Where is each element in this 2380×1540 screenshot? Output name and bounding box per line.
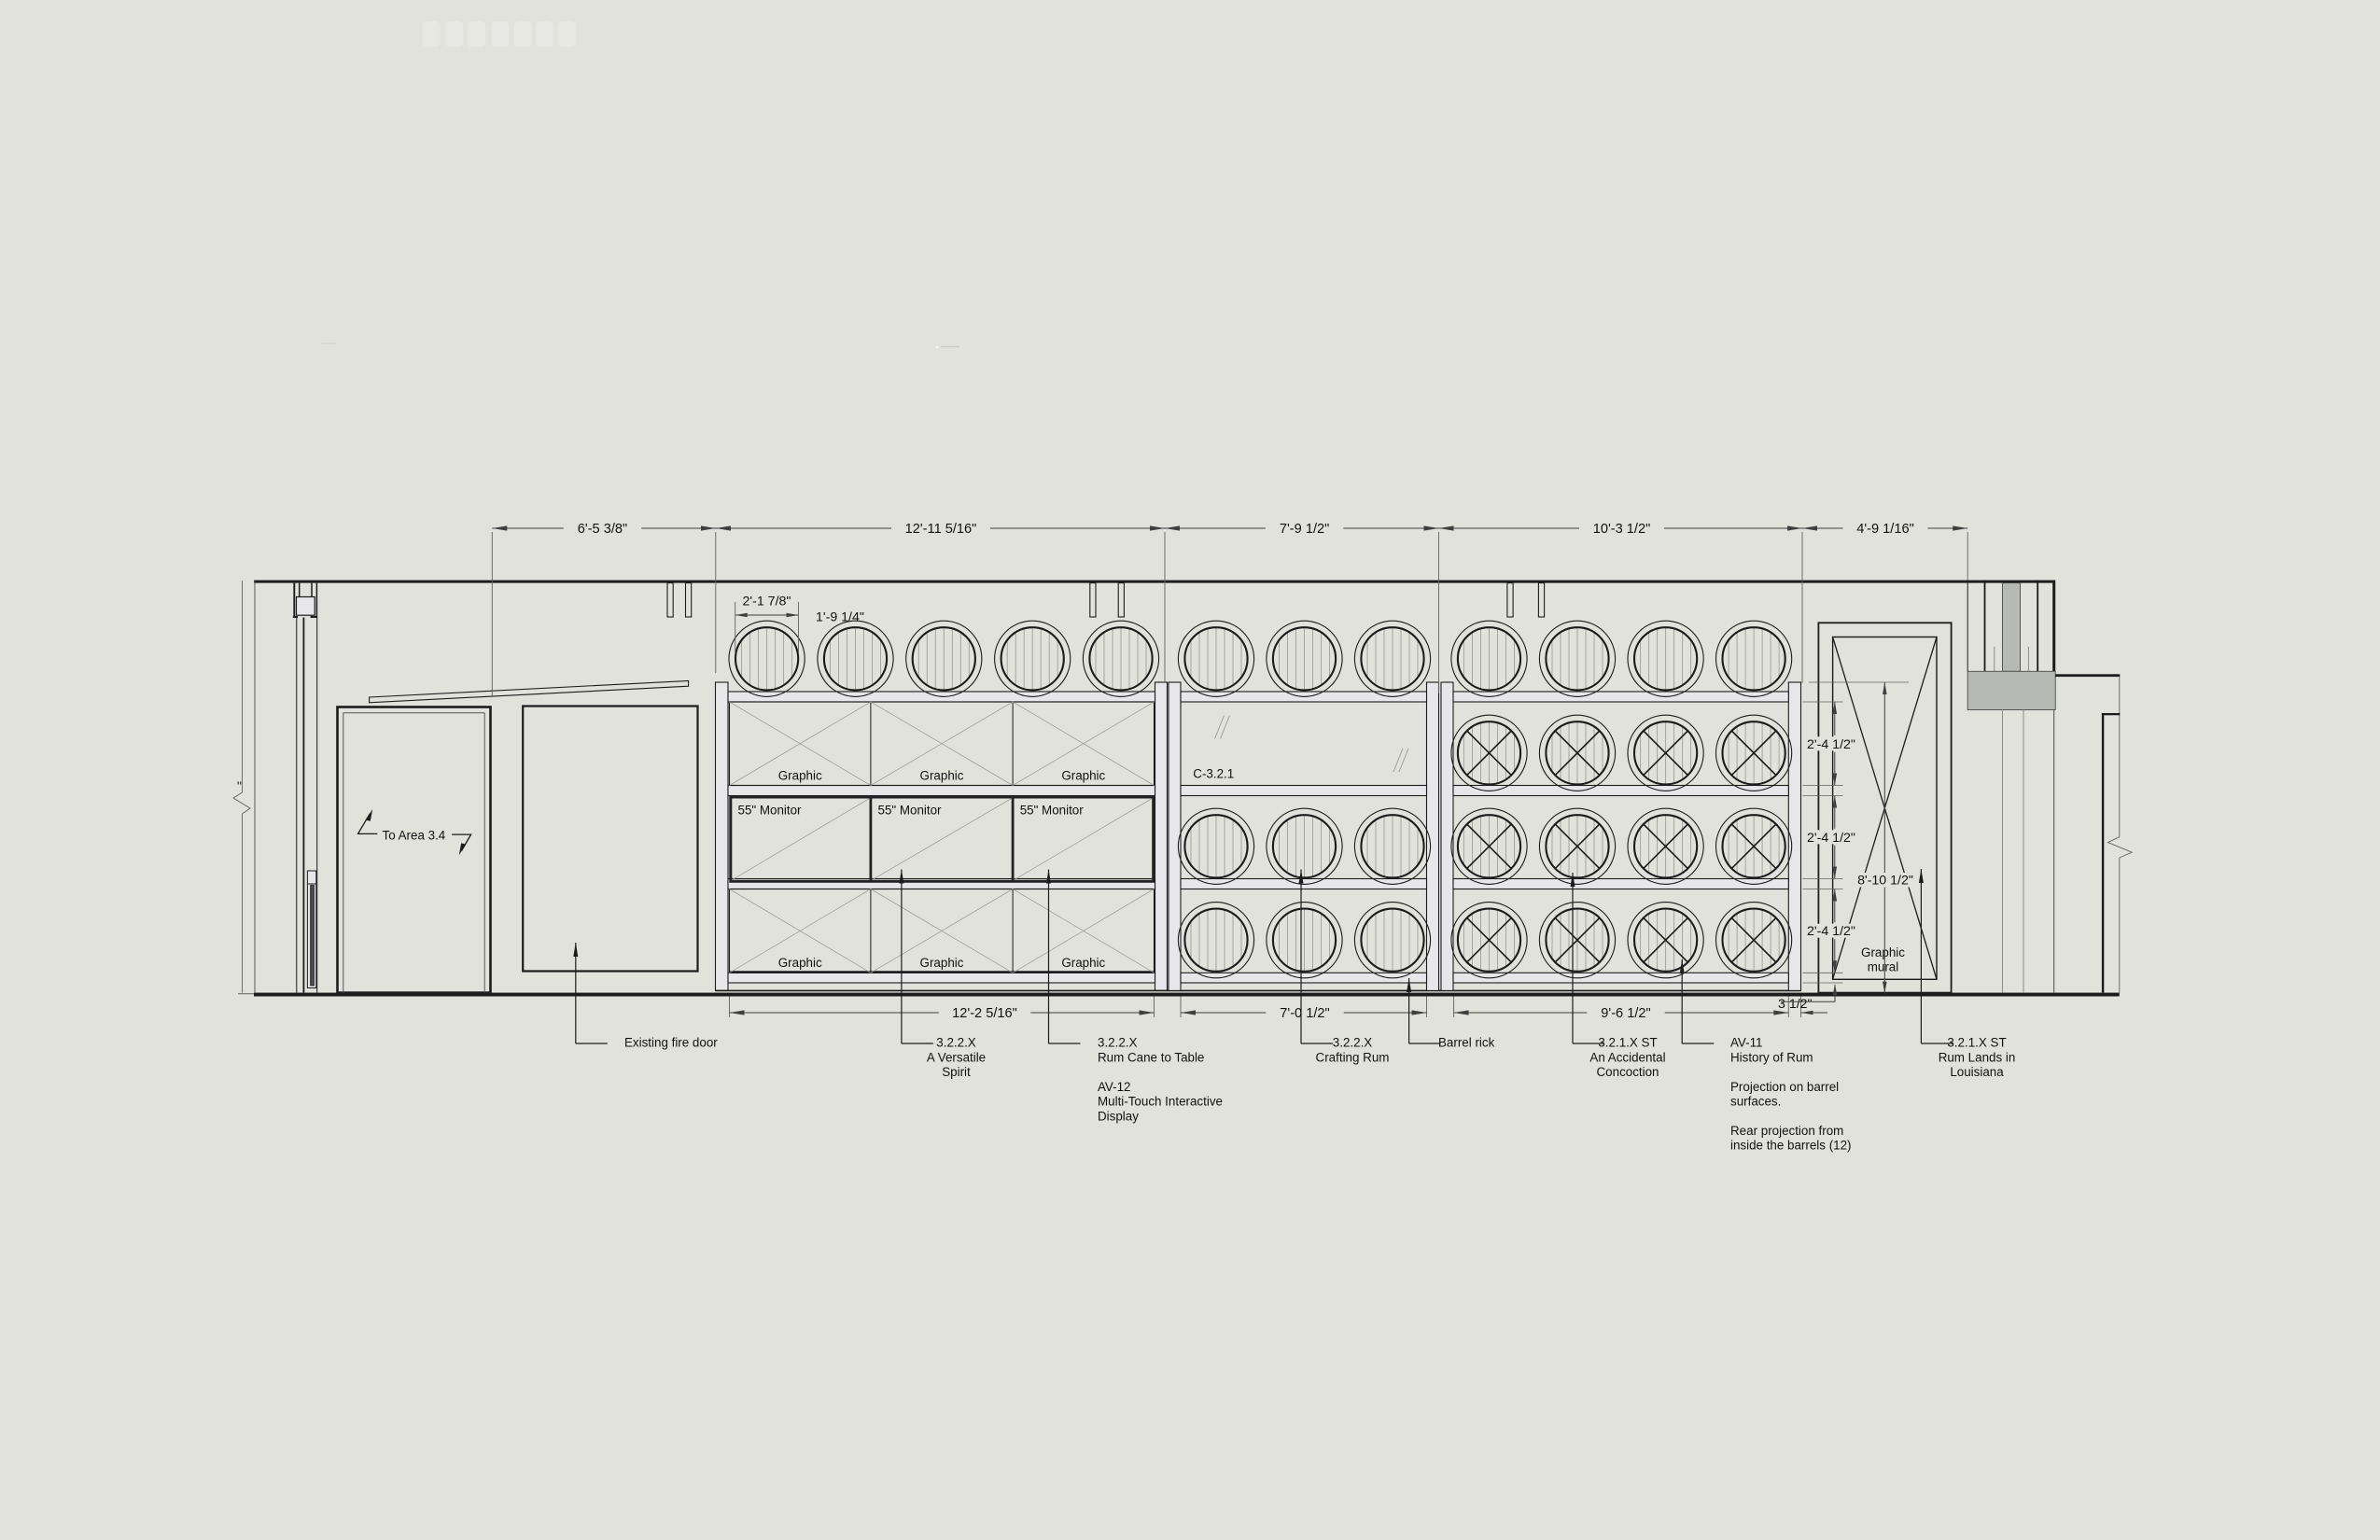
svg-text:Barrel rick: Barrel rick [1438,1036,1495,1050]
svg-text:3.2.2.X: 3.2.2.X [1333,1036,1373,1050]
svg-text:Graphic: Graphic [920,956,964,970]
svg-text:To Area 3.4: To Area 3.4 [383,829,446,843]
svg-text:inside the barrels (12): inside the barrels (12) [1730,1139,1852,1153]
svg-text:10'-3 1/2": 10'-3 1/2" [1593,522,1651,537]
svg-text:3.2.2.X: 3.2.2.X [1098,1036,1138,1050]
svg-text:4'-9 1/16": 4'-9 1/16" [1856,522,1914,537]
svg-text:12'-11 5/16": 12'-11 5/16" [905,522,977,537]
svg-text:3 1/2": 3 1/2" [1778,997,1813,1012]
svg-text:2'-4 1/2": 2'-4 1/2" [1807,831,1855,846]
svg-text:3.2.2.X: 3.2.2.X [936,1036,976,1050]
svg-text:Spirit: Spirit [942,1065,971,1079]
svg-text:Rear projection from: Rear projection from [1730,1124,1843,1138]
svg-text:AV-12: AV-12 [1098,1080,1130,1094]
svg-text:History of Rum: History of Rum [1730,1050,1813,1064]
svg-text:55" Monitor: 55" Monitor [878,804,943,818]
svg-text:C-3.2.1: C-3.2.1 [1193,767,1234,781]
svg-text:Multi-Touch Interactive: Multi-Touch Interactive [1098,1095,1223,1109]
svg-text:Graphic: Graphic [920,769,964,783]
svg-text:2'-4 1/2": 2'-4 1/2" [1807,924,1855,939]
svg-text:2'-1 7/8": 2'-1 7/8" [743,595,791,609]
svg-text:3.2.1.X ST: 3.2.1.X ST [1947,1036,2006,1050]
svg-text:7'-0 1/2": 7'-0 1/2" [1280,1006,1329,1021]
svg-text:9'-6 1/2": 9'-6 1/2" [1601,1006,1650,1021]
svg-text:surfaces.: surfaces. [1730,1095,1781,1109]
svg-text:A Versatile: A Versatile [927,1050,986,1064]
svg-text:AV-11: AV-11 [1730,1036,1763,1050]
svg-text:55" Monitor: 55" Monitor [738,804,803,818]
svg-text:1'-9 1/4": 1'-9 1/4" [816,610,864,625]
svg-text:12'-2 5/16": 12'-2 5/16" [952,1006,1017,1021]
svg-text:Louisiana: Louisiana [1950,1065,2004,1079]
svg-text:An Accidental: An Accidental [1589,1050,1665,1064]
svg-text:8'-10 1/2": 8'-10 1/2" [1857,874,1913,889]
svg-text:2'-4 1/2": 2'-4 1/2" [1807,737,1855,752]
svg-text:Rum Lands in: Rum Lands in [1939,1050,2016,1064]
svg-text:Graphic: Graphic [1061,956,1105,970]
svg-text:Graphic: Graphic [778,769,822,783]
svg-text:Graphic: Graphic [778,956,822,970]
svg-text:3.2.1.X ST: 3.2.1.X ST [1598,1036,1657,1050]
svg-text:6'-5 3/8": 6'-5 3/8" [578,522,627,537]
svg-text:mural: mural [1868,960,1899,974]
svg-text:Crafting Rum: Crafting Rum [1316,1050,1390,1064]
svg-text:Graphic: Graphic [1861,945,1905,959]
svg-text:7'-9 1/2": 7'-9 1/2" [1280,522,1329,537]
svg-text:": " [237,778,242,793]
svg-text:Graphic: Graphic [1061,769,1105,783]
svg-text:Projection on barrel: Projection on barrel [1730,1080,1839,1094]
svg-text:Existing fire door: Existing fire door [624,1036,718,1050]
svg-text:Concoction: Concoction [1597,1065,1659,1079]
svg-text:55" Monitor: 55" Monitor [1020,804,1085,818]
svg-text:Display: Display [1098,1109,1139,1123]
svg-text:Rum Cane to Table: Rum Cane to Table [1098,1050,1204,1064]
